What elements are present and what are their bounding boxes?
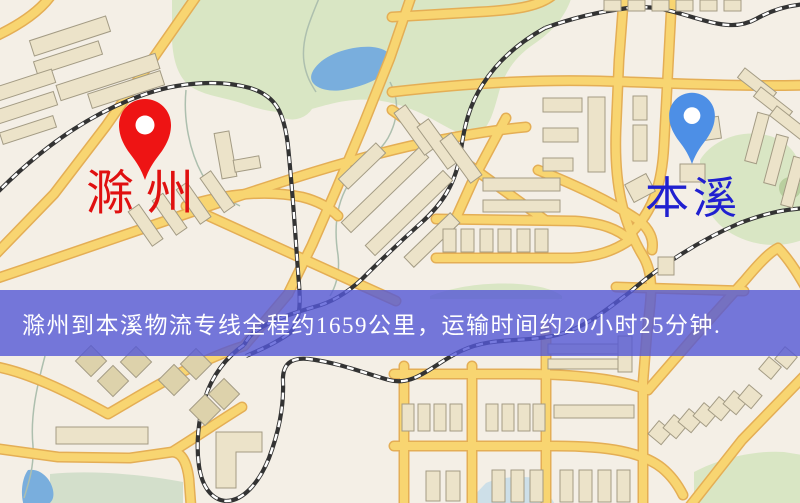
origin-label: 滁州 — [86, 170, 206, 218]
logistics-map-image: 滁州 本溪 滁州到本溪物流专线全程约1659公里，运输时间约20小时25分钟. — [0, 0, 800, 503]
route-info-banner: 滁州到本溪物流专线全程约1659公里，运输时间约20小时25分钟. — [0, 290, 800, 356]
destination-label: 本溪 — [645, 177, 741, 221]
route-info-text: 滁州到本溪物流专线全程约1659公里，运输时间约20小时25分钟. — [0, 306, 721, 340]
map-canvas — [0, 0, 800, 503]
